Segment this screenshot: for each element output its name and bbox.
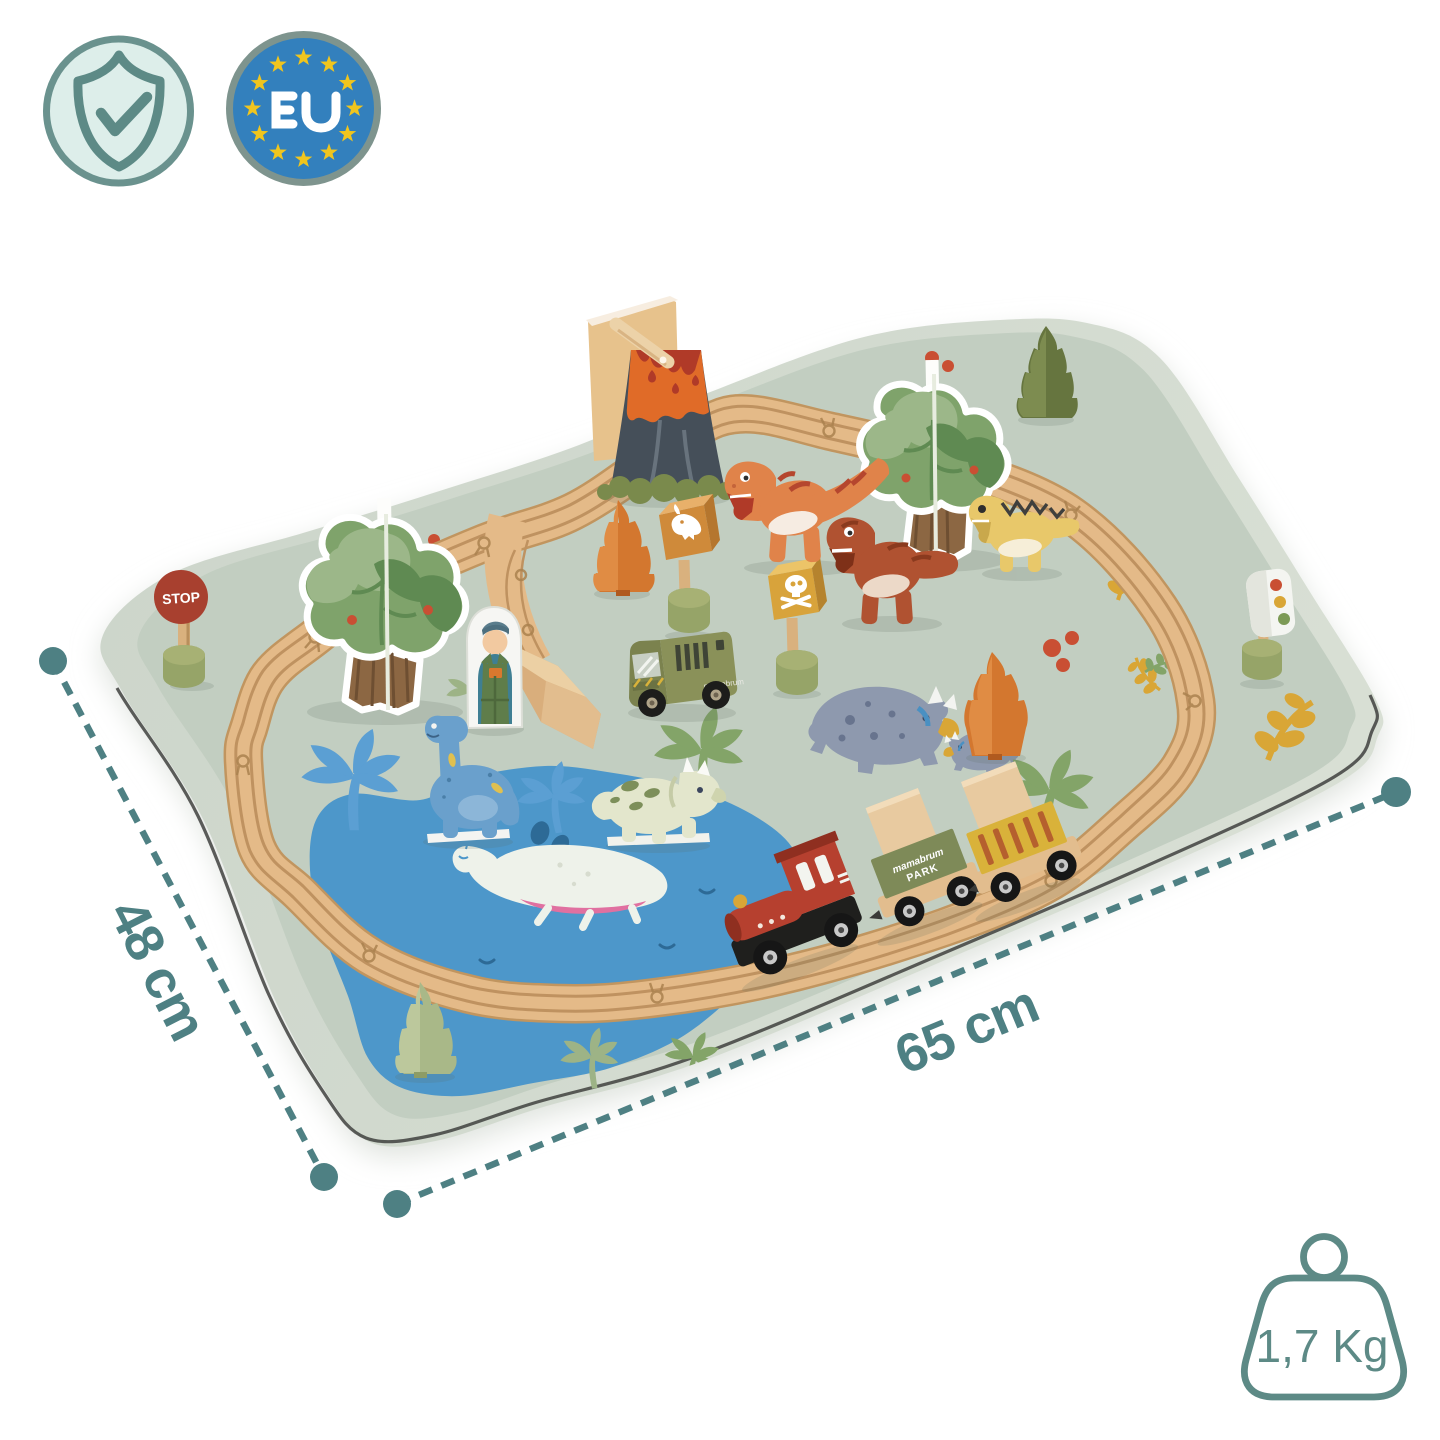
svg-text:STOP: STOP — [162, 589, 201, 608]
svg-text:1,7 Kg: 1,7 Kg — [1256, 1320, 1389, 1372]
